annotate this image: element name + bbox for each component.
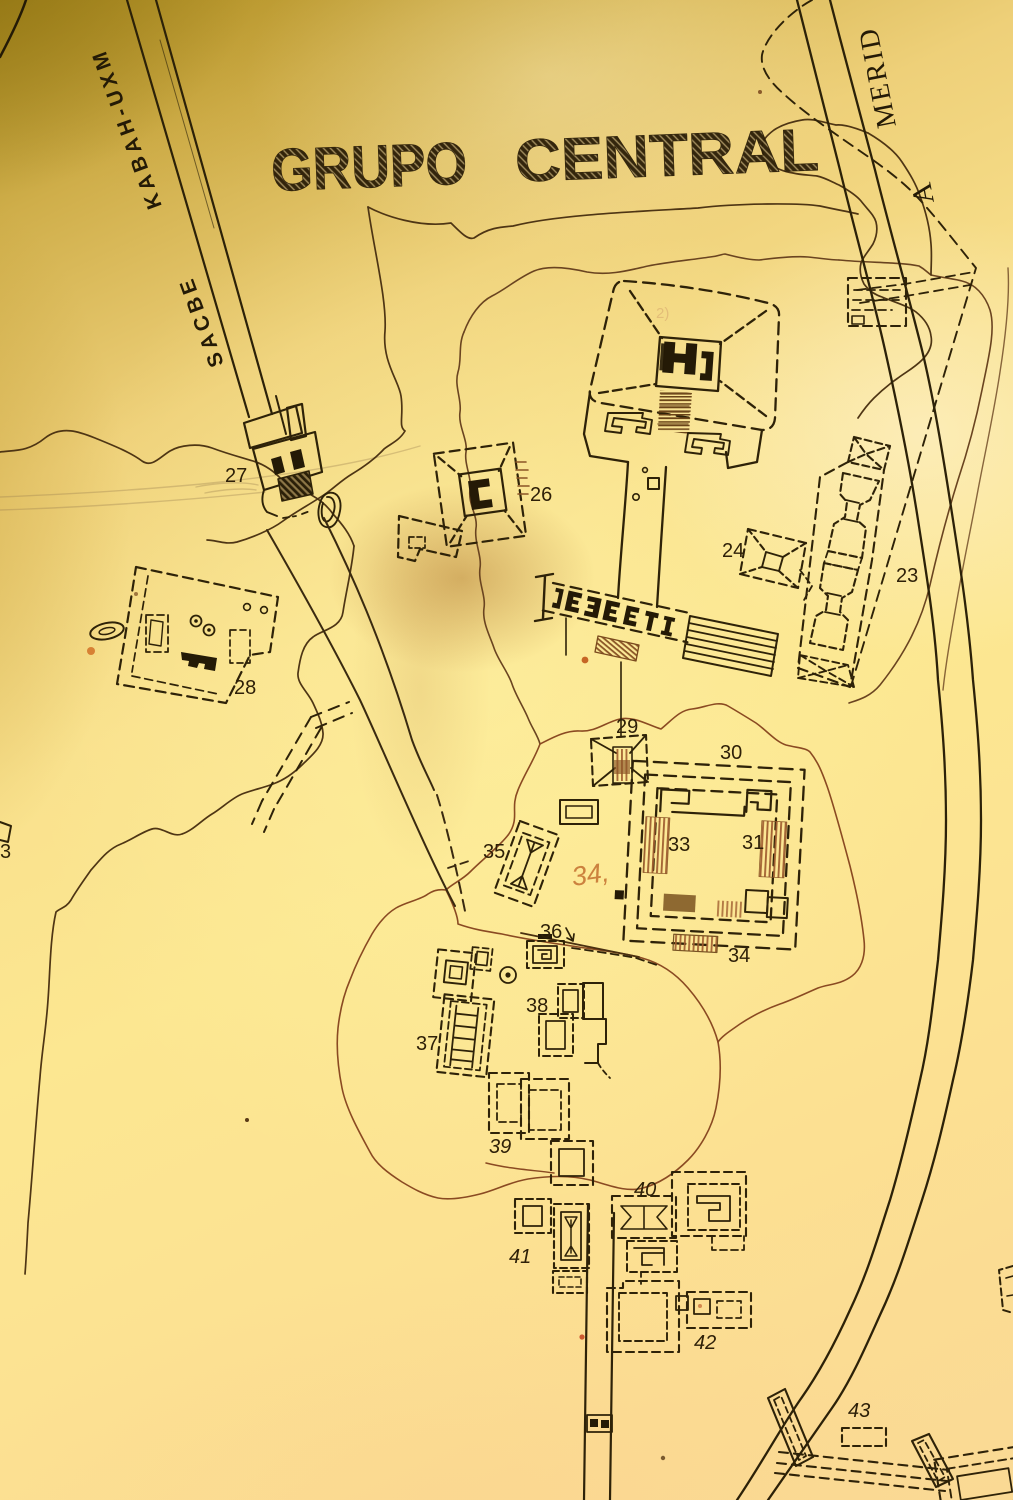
svg-text:KABAH-UXM: KABAH-UXM <box>87 45 167 213</box>
svg-text:37: 37 <box>416 1033 438 1055</box>
svg-text:35: 35 <box>483 841 505 863</box>
svg-text:24: 24 <box>722 540 744 562</box>
svg-text:3: 3 <box>0 841 11 863</box>
svg-text:42: 42 <box>694 1332 716 1354</box>
svg-text:28: 28 <box>234 677 256 699</box>
svg-text:34,: 34, <box>570 857 611 892</box>
svg-text:39: 39 <box>489 1136 511 1158</box>
svg-text:31: 31 <box>742 832 764 854</box>
svg-text:A: A <box>905 180 940 207</box>
svg-text:40: 40 <box>634 1179 656 1201</box>
svg-text:27: 27 <box>225 465 247 487</box>
svg-text:29: 29 <box>616 716 638 738</box>
svg-text:23: 23 <box>896 565 918 587</box>
svg-text:2): 2) <box>656 305 669 322</box>
svg-text:41: 41 <box>509 1246 531 1268</box>
svg-text:30: 30 <box>720 742 742 764</box>
svg-text:36: 36 <box>540 921 562 943</box>
svg-text:CENTRAL: CENTRAL <box>514 116 820 195</box>
svg-text:26: 26 <box>530 484 552 506</box>
svg-text:33: 33 <box>668 834 690 856</box>
svg-text:38: 38 <box>526 995 548 1017</box>
svg-text:43: 43 <box>848 1400 870 1422</box>
svg-text:34: 34 <box>728 945 750 967</box>
svg-text:GRUPO: GRUPO <box>270 130 468 204</box>
